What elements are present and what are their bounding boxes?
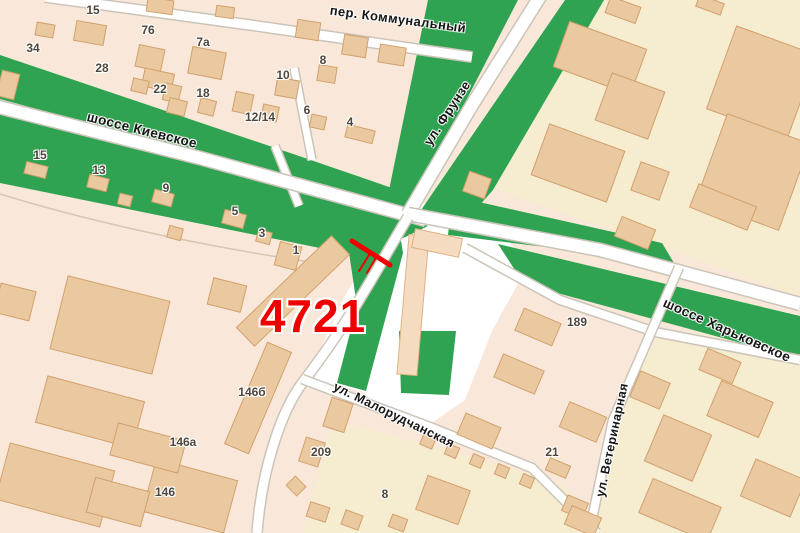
building <box>232 91 254 114</box>
building <box>275 77 300 99</box>
building <box>378 44 406 66</box>
map-base-layer <box>0 0 800 533</box>
building <box>215 5 234 18</box>
building <box>117 193 132 207</box>
building <box>35 22 55 38</box>
building <box>309 114 326 130</box>
building <box>342 34 369 58</box>
building <box>188 47 227 80</box>
building <box>295 19 321 40</box>
building <box>317 65 337 84</box>
map-canvas[interactable]: пер. Коммунальный шоссе Киевское ул. Фру… <box>0 0 800 533</box>
building <box>261 104 280 122</box>
building <box>197 98 216 116</box>
building <box>135 45 165 72</box>
